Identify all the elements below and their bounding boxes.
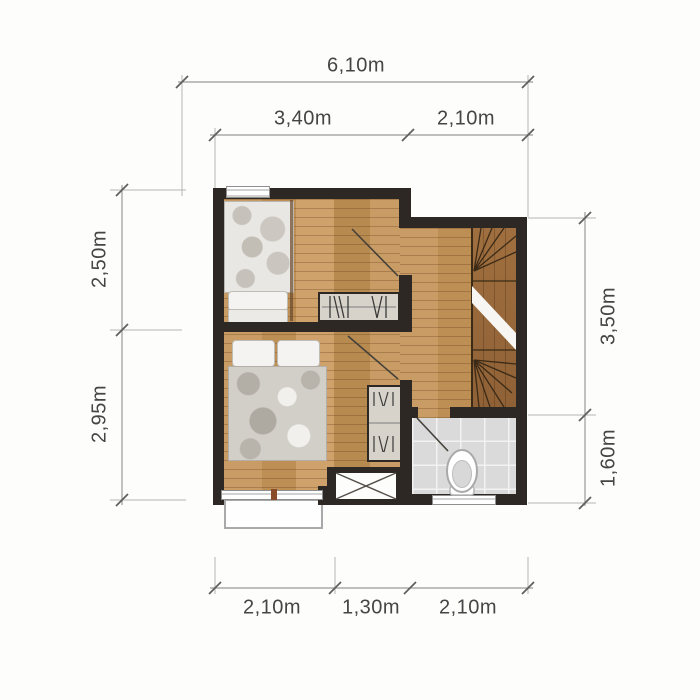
dim-top-right: 2,10m	[437, 108, 495, 131]
dim-bottom-middle: 1,30m	[342, 597, 400, 620]
window-mullion	[271, 489, 277, 500]
bed-double-duvet	[228, 366, 327, 461]
dim-top-left: 3,40m	[274, 108, 332, 131]
bathroom-tile-floor	[412, 418, 516, 494]
staircase-floor	[472, 228, 516, 407]
wall-stub-bedroom1	[399, 275, 412, 332]
wardrobe	[367, 385, 402, 462]
window-bedroom1-top	[226, 186, 270, 198]
crossed-void-box	[327, 467, 402, 505]
bed-single-duvet	[224, 201, 294, 293]
window-bathroom-bottom	[432, 495, 496, 505]
dim-left-lower: 2,95m	[89, 385, 112, 443]
balcony-outline	[224, 499, 323, 529]
floor-plan: 6,10m 3,40m 2,10m 2,50m 2,95m 3,50m 1,60…	[0, 0, 700, 700]
bed-double-pillow-left	[232, 340, 275, 367]
dim-right-lower: 1,60m	[598, 429, 621, 487]
bed-single-pillow	[228, 291, 288, 311]
dim-bottom-right: 2,10m	[439, 597, 497, 620]
wall-bath-top-left	[400, 407, 418, 418]
dim-right-upper: 3,50m	[598, 287, 621, 345]
wall-left	[213, 188, 224, 505]
wall-top-right-section	[399, 217, 527, 228]
bed-single-frame-edge	[290, 200, 293, 321]
wall-right	[516, 217, 527, 505]
bed-double-pillow-right	[277, 340, 320, 367]
dim-left-upper: 2,50m	[89, 230, 112, 288]
dresser	[318, 292, 400, 322]
dim-top-total: 6,10m	[327, 55, 385, 78]
wall-bath-top-right	[450, 407, 527, 418]
wall-stub-bedroom2-bath	[400, 380, 412, 505]
dim-bottom-left: 2,10m	[243, 597, 301, 620]
wall-bedroom-divider	[213, 322, 412, 332]
bed-single-footboard	[228, 309, 288, 323]
